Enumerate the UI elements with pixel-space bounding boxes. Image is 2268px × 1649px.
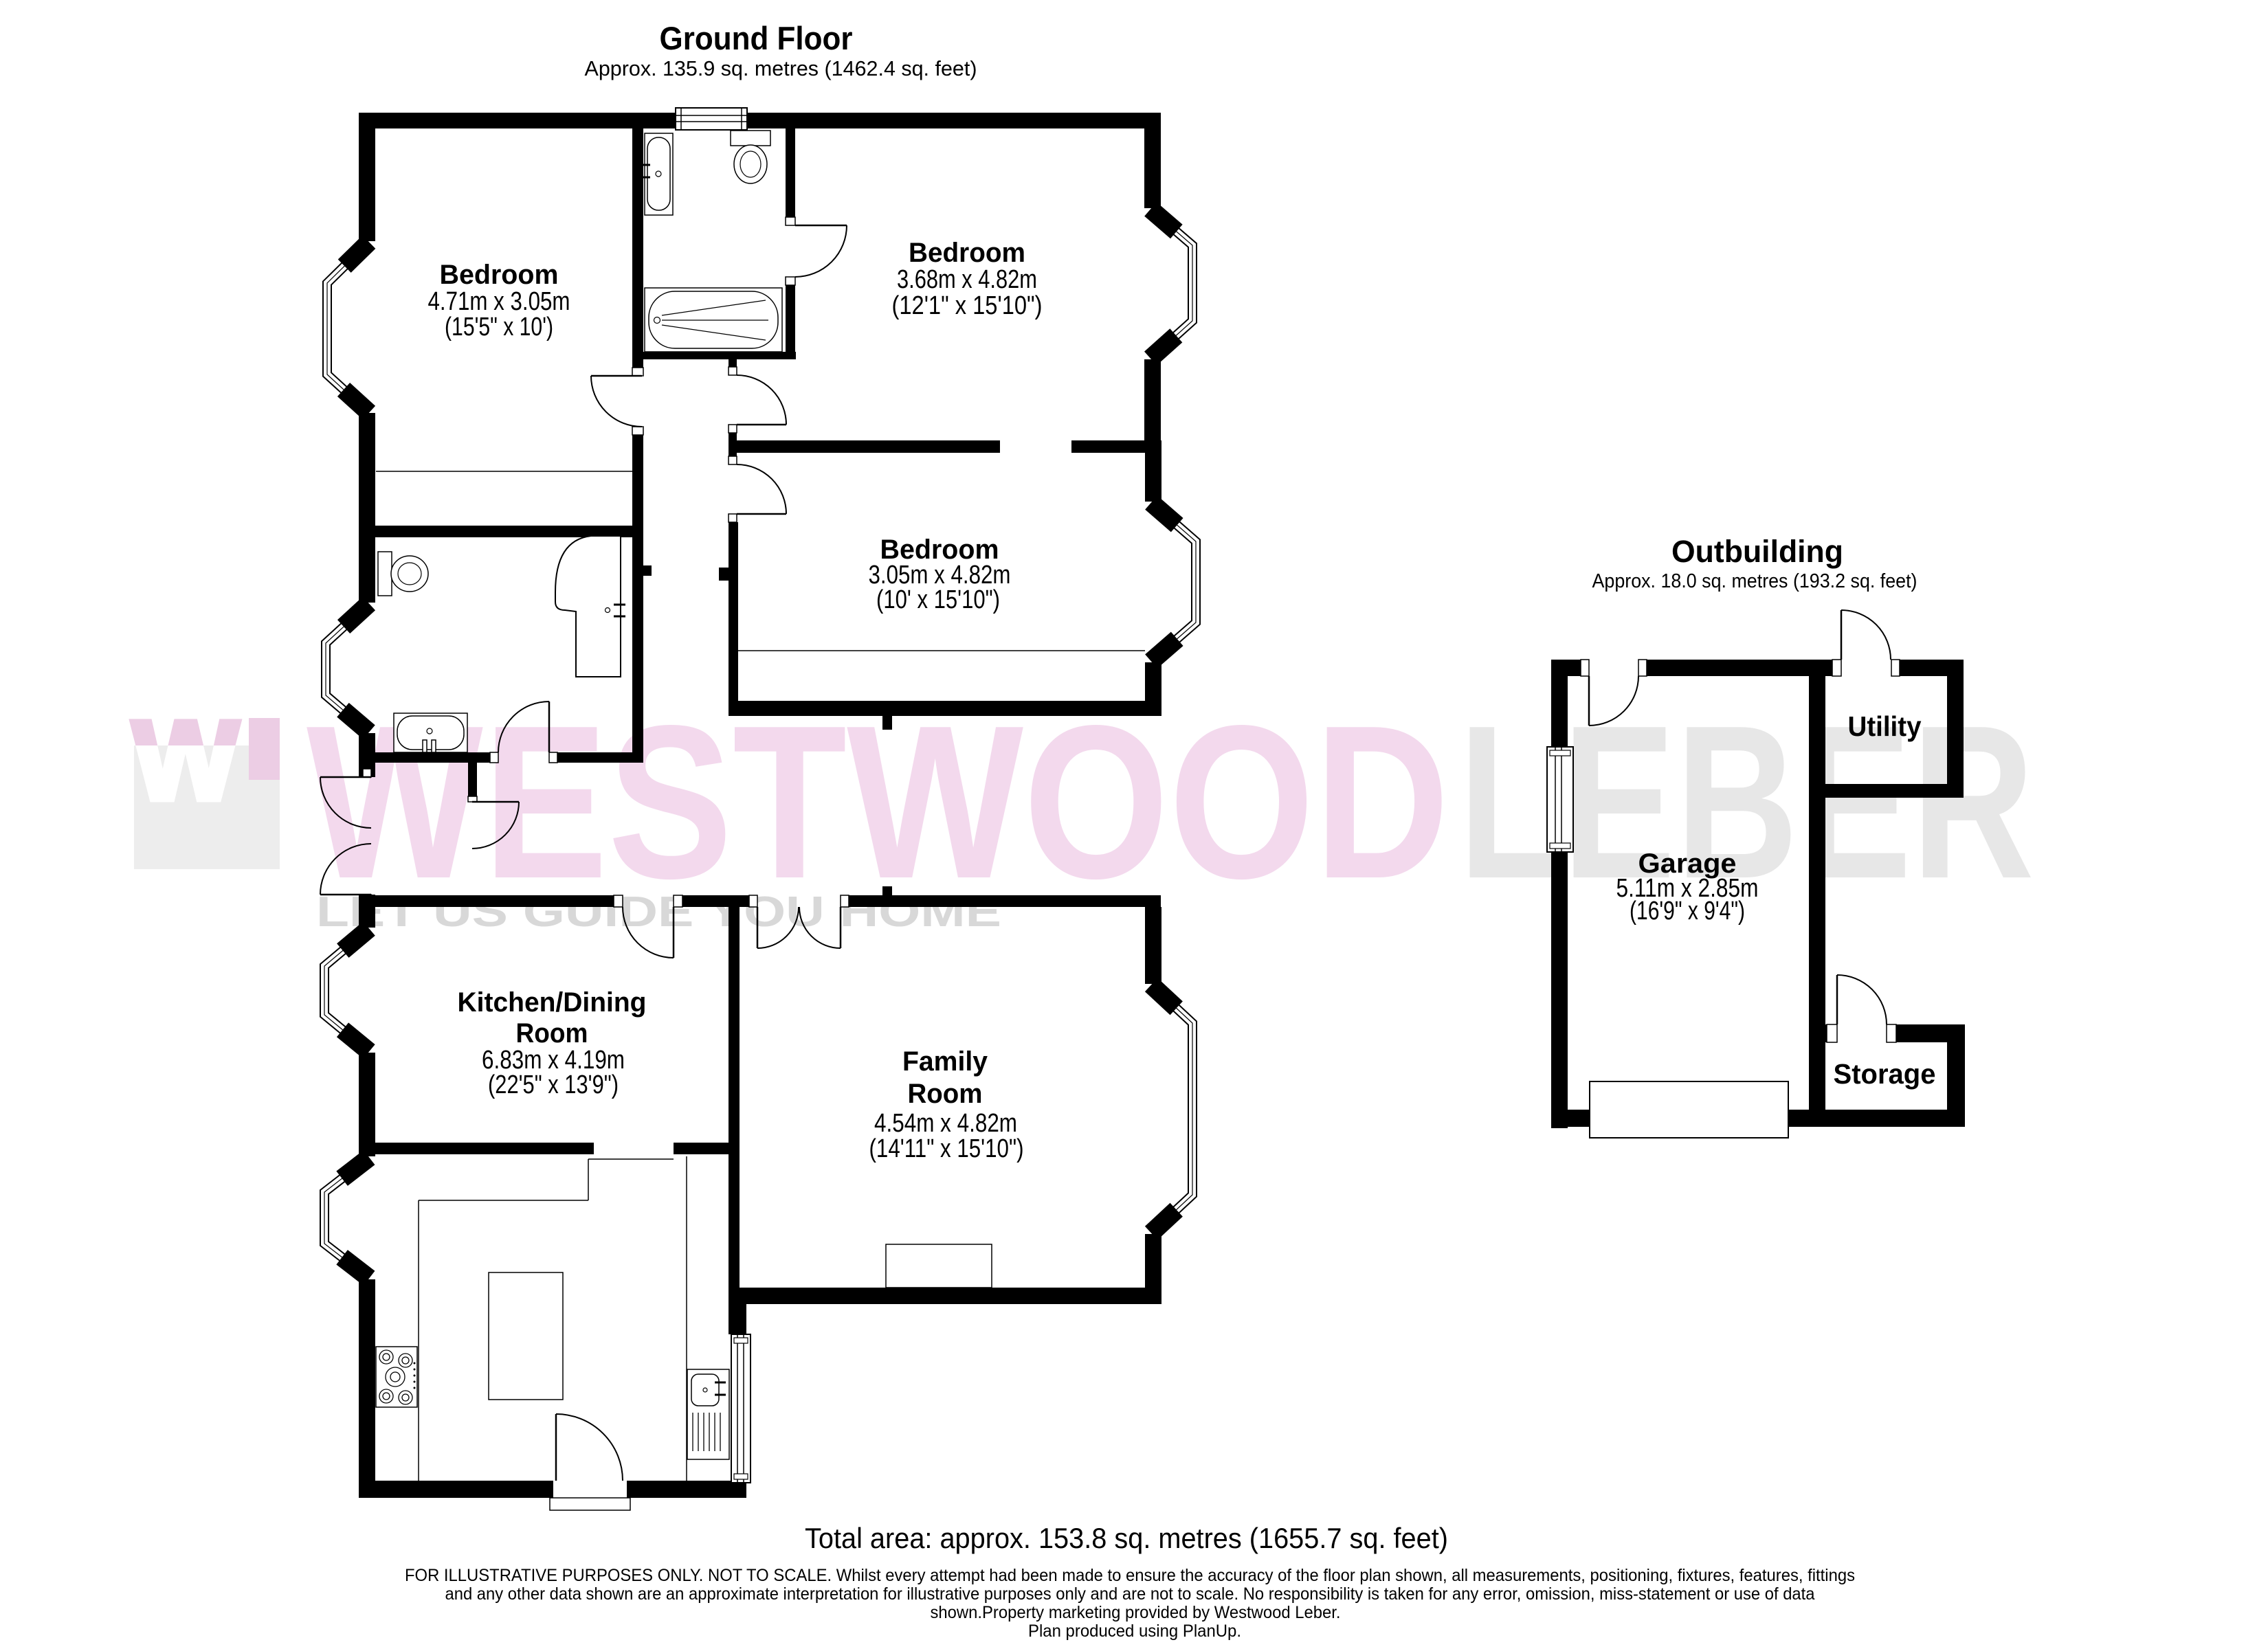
svg-text:and any other data shown are a: and any other data shown are an approxim… [445,1584,1815,1604]
svg-text:Kitchen/Dining: Kitchen/Dining [458,987,647,1018]
svg-text:(14'11" x 15'10"): (14'11" x 15'10") [869,1134,1024,1163]
svg-text:(10' x 15'10"): (10' x 15'10") [876,585,1000,614]
svg-text:Total area: approx. 153.8 sq.: Total area: approx. 153.8 sq. metres (16… [805,1522,1448,1554]
svg-text:(22'5" x 13'9"): (22'5" x 13'9") [488,1070,619,1099]
svg-text:3.68m x 4.82m: 3.68m x 4.82m [897,265,1037,294]
svg-text:Plan produced using PlanUp.: Plan produced using PlanUp. [1028,1622,1241,1641]
svg-text:(15'5" x 10'): (15'5" x 10') [445,313,553,341]
svg-text:Bedroom: Bedroom [440,260,559,290]
svg-text:Family: Family [902,1046,988,1077]
svg-text:Utility: Utility [1848,710,1922,742]
svg-text:Approx. 135.9 sq. metres (1462: Approx. 135.9 sq. metres (1462.4 sq. fee… [585,56,977,80]
svg-text:Room: Room [516,1018,588,1048]
svg-text:4.54m x 4.82m: 4.54m x 4.82m [874,1109,1017,1138]
svg-text:(12'1" x 15'10"): (12'1" x 15'10") [892,291,1043,320]
svg-text:4.71m x 3.05m: 4.71m x 3.05m [428,287,570,316]
svg-text:Ground Floor: Ground Floor [660,20,853,56]
svg-text:Approx. 18.0 sq. metres (193.2: Approx. 18.0 sq. metres (193.2 sq. feet) [1592,570,1917,592]
svg-text:(16'9" x 9'4"): (16'9" x 9'4") [1630,897,1745,926]
svg-text:Room: Room [908,1079,983,1109]
svg-text:shown.Property marketing provi: shown.Property marketing provided by Wes… [931,1603,1341,1622]
svg-text:Outbuilding: Outbuilding [1671,534,1843,569]
svg-text:Bedroom: Bedroom [909,238,1025,268]
svg-text:Storage: Storage [1834,1058,1936,1090]
svg-text:FOR ILLUSTRATIVE PURPOSES ONLY: FOR ILLUSTRATIVE PURPOSES ONLY. NOT TO S… [405,1566,1855,1585]
